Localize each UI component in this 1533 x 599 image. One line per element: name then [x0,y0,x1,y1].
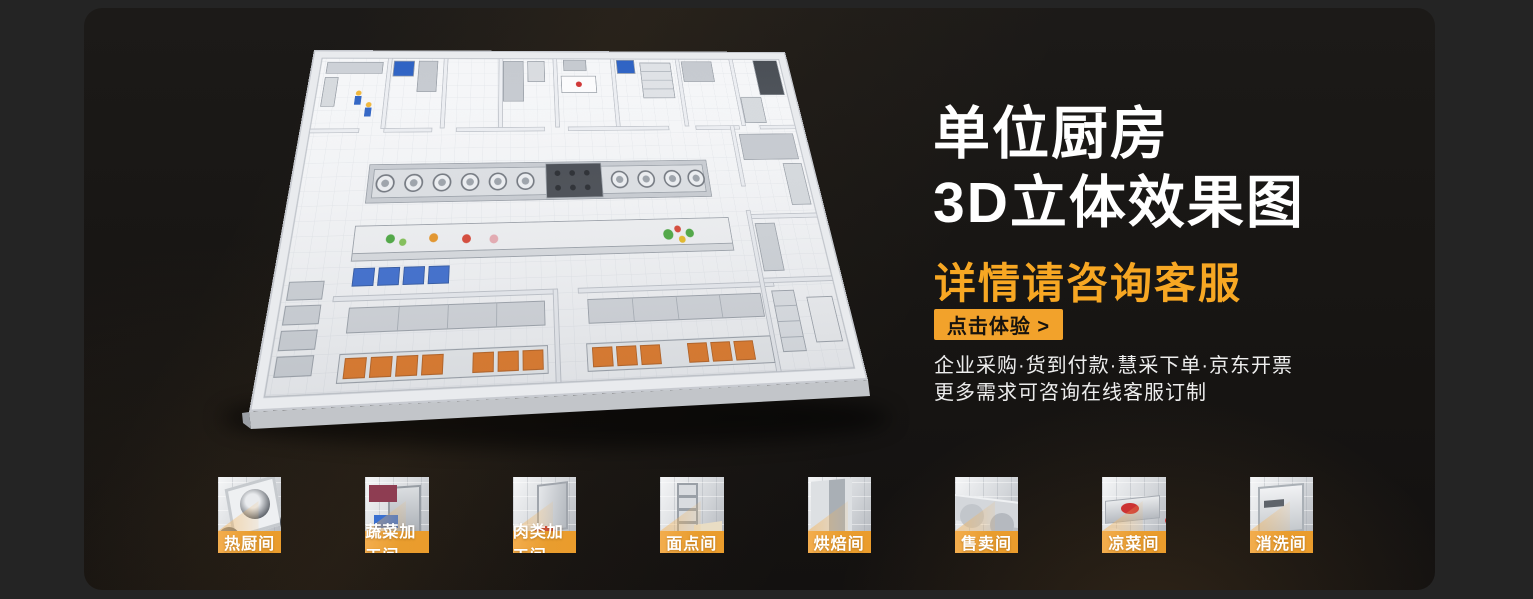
info-line-1: 企业采购·货到付款·慧采下单·京东开票 [934,353,1293,380]
banner-info: 企业采购·货到付款·慧采下单·京东开票 更多需求可咨询在线客服订制 [934,353,1293,407]
cta-button[interactable]: 点击体验 > [934,309,1063,340]
thumbnail-label: 蔬菜加工间 [365,531,428,553]
thumbnail-sales-room[interactable]: 售卖间 [955,477,1018,553]
thumbnail-label: 热厨间 [218,531,281,553]
label-accent [660,501,701,531]
label-accent [1102,501,1143,531]
thumbnail-label: 烘焙间 [808,531,871,553]
banner-title-line-1: 单位厨房 [933,100,1305,169]
thumbnail-cold-dish-room[interactable]: 凉菜间 [1102,477,1165,553]
page-root: 单位厨房 3D立体效果图 详情请咨询客服 点击体验 > 企业采购·货到付款·慧采… [0,0,1533,599]
kitchen-floorplan-svg [249,50,868,412]
banner-subtitle: 详情请咨询客服 [934,250,1242,311]
thumbnail-hot-kitchen[interactable]: 热厨间 [218,477,281,553]
thumbnail-strip: 热厨间 蔬菜加工间 肉类加工间 面点间 烘焙间 售卖间 [178,461,1353,569]
thumbnail-label: 消洗间 [1250,531,1313,553]
thumbnail-label: 售卖间 [955,531,1018,553]
label-accent [218,501,259,531]
kitchen-floorplan-3d [249,50,868,412]
thumbnail-label: 凉菜间 [1102,531,1165,553]
label-accent [955,501,996,531]
thumbnail-pastry-room[interactable]: 面点间 [660,477,723,553]
label-accent [1250,501,1291,531]
label-accent [808,501,849,531]
thumbnail-baking-room[interactable]: 烘焙间 [808,477,871,553]
thumbnail-washing-room[interactable]: 消洗间 [1250,477,1313,553]
info-line-2: 更多需求可咨询在线客服订制 [934,380,1293,407]
banner-title: 单位厨房 3D立体效果图 [933,100,1305,238]
thumbnail-vegetable-processing[interactable]: 蔬菜加工间 [365,477,428,553]
thumbnail-meat-processing[interactable]: 肉类加工间 [513,477,576,553]
promo-banner: 单位厨房 3D立体效果图 详情请咨询客服 点击体验 > 企业采购·货到付款·慧采… [84,8,1435,590]
thumbnail-label: 面点间 [660,531,723,553]
banner-title-line-2: 3D立体效果图 [933,169,1305,238]
thumbnail-label: 肉类加工间 [513,531,576,553]
